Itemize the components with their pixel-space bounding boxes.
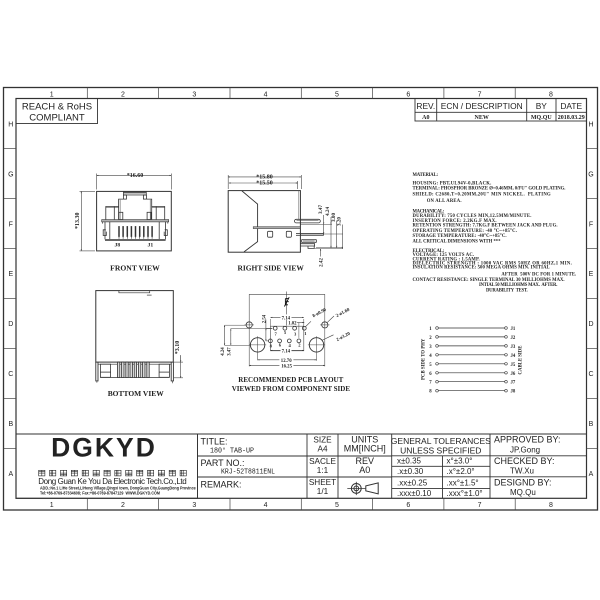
svg-text:A: A: [8, 471, 13, 478]
svg-text:1:1: 1:1: [317, 466, 329, 475]
svg-text:REMARK:: REMARK:: [201, 480, 242, 490]
svg-text:16.25: 16.25: [281, 365, 292, 370]
svg-text:J8: J8: [115, 242, 121, 248]
svg-text:*13.30: *13.30: [75, 213, 81, 230]
svg-text:7: 7: [478, 502, 482, 509]
svg-text:ON ALL AREA.: ON ALL AREA.: [427, 199, 462, 204]
svg-text:J2: J2: [511, 336, 516, 341]
svg-text:J6: J6: [511, 372, 516, 377]
svg-text:BOTTOM VIEW: BOTTOM VIEW: [108, 389, 164, 398]
svg-text:MM[INCH]: MM[INCH]: [344, 444, 386, 454]
svg-text:J5: J5: [511, 363, 516, 368]
svg-text:2.42: 2.42: [319, 258, 325, 267]
svg-text:180° TAB-UP: 180° TAB-UP: [210, 447, 254, 456]
svg-text:A: A: [589, 471, 594, 478]
svg-text:J7: J7: [511, 381, 516, 386]
svg-text:VIEWED FROM COMPONENT SIDE: VIEWED FROM COMPONENT SIDE: [232, 385, 351, 393]
svg-text:H: H: [8, 121, 13, 128]
svg-text:1.02: 1.02: [288, 322, 297, 327]
svg-text:D: D: [8, 321, 13, 328]
svg-text:3.47: 3.47: [318, 205, 324, 214]
svg-text:J8: J8: [511, 390, 516, 395]
svg-text:CABLE SIDE: CABLE SIDE: [518, 346, 523, 375]
svg-text:.xxx°±1.0°: .xxx°±1.0°: [447, 489, 483, 498]
svg-text:x±0.35: x±0.35: [397, 457, 422, 466]
svg-text:.xx±0.25: .xx±0.25: [397, 479, 428, 488]
svg-text:DGKYD: DGKYD: [51, 433, 157, 463]
svg-text:KRJ-52T8811ENL: KRJ-52T8811ENL: [221, 469, 275, 477]
svg-text:DESIGND BY:: DESIGND BY:: [494, 478, 552, 488]
svg-text:4.24: 4.24: [221, 347, 226, 356]
svg-text:ALL CRITICAL DIMENSIONS WITH *: ALL CRITICAL DIMENSIONS WITH ***: [413, 239, 502, 244]
svg-text:SHEET: SHEET: [309, 478, 336, 487]
svg-text:A0: A0: [359, 465, 370, 475]
svg-text:B: B: [8, 421, 13, 428]
svg-text:ECN / DESCRIPTION: ECN / DESCRIPTION: [441, 101, 523, 111]
svg-text:.xx°±1.5°: .xx°±1.5°: [447, 479, 479, 488]
svg-text:J4: J4: [511, 354, 516, 359]
svg-text:F: F: [589, 221, 593, 228]
svg-text:COMPLIANT: COMPLIANT: [29, 113, 85, 124]
svg-text:SHIELD: C2680,T=0.20MM,20U" MI: SHIELD: C2680,T=0.20MM,20U" MIN NICKEL. …: [413, 193, 552, 198]
svg-text:8: 8: [549, 502, 553, 509]
svg-text:H: H: [588, 121, 593, 128]
svg-text:3: 3: [192, 502, 196, 509]
svg-text:MQ.QU: MQ.QU: [531, 115, 552, 121]
svg-text:*15.50: *15.50: [256, 181, 273, 187]
svg-text:1: 1: [50, 502, 54, 509]
svg-text:7.14: 7.14: [282, 350, 291, 355]
svg-text:2: 2: [121, 92, 125, 99]
svg-text:RECOMMENDED PCB LAYOUT: RECOMMENDED PCB LAYOUT: [238, 376, 343, 384]
svg-text:NEW: NEW: [475, 115, 489, 121]
svg-text:E: E: [589, 271, 594, 278]
svg-text:5: 5: [335, 92, 339, 99]
svg-text:3.20: 3.20: [337, 217, 343, 226]
svg-text:FRONT VIEW: FRONT VIEW: [110, 264, 160, 273]
svg-text:*16.60: *16.60: [127, 173, 144, 179]
svg-text:5: 5: [335, 502, 339, 509]
svg-text:PART NO.:: PART NO.:: [201, 458, 245, 468]
svg-text:8: 8: [549, 92, 553, 99]
svg-text:x°±3.0°: x°±3.0°: [447, 457, 473, 466]
svg-text:7: 7: [478, 92, 482, 99]
svg-text:*3.10: *3.10: [175, 341, 181, 355]
svg-text:CHECKED BY:: CHECKED BY:: [494, 456, 555, 466]
svg-text:UNLESS SPECIFIED: UNLESS SPECIFIED: [400, 446, 481, 456]
svg-text:A4: A4: [317, 445, 327, 454]
svg-text:2018.03.29: 2018.03.29: [558, 115, 585, 121]
svg-text:JP.Gong: JP.Gong: [510, 446, 540, 455]
svg-text:J1: J1: [511, 327, 516, 332]
svg-text:*15.80: *15.80: [256, 174, 273, 180]
svg-text:J3: J3: [511, 345, 516, 350]
svg-text:F: F: [9, 221, 13, 228]
svg-text:6: 6: [406, 92, 410, 99]
svg-text:E: E: [8, 271, 13, 278]
svg-text:G: G: [588, 171, 593, 178]
svg-text:2.54: 2.54: [262, 314, 267, 323]
svg-text:1: 1: [50, 92, 54, 99]
svg-text:.x±0.30: .x±0.30: [397, 467, 424, 476]
svg-text:A0: A0: [422, 115, 429, 121]
svg-text:INSULATION RESISTANCE: 500 MEG: INSULATION RESISTANCE: 500 MEGA OHMS MIN…: [413, 266, 550, 271]
svg-text:B: B: [589, 421, 594, 428]
svg-text:RIGHT SIDE VIEW: RIGHT SIDE VIEW: [238, 263, 305, 272]
svg-text:TERMINAL: PHOSPHOR BRONZE Ø=0.: TERMINAL: PHOSPHOR BRONZE Ø=0.46MM, 0/FU…: [413, 187, 566, 192]
svg-text:MQ.Qu: MQ.Qu: [510, 488, 536, 497]
svg-text:4: 4: [264, 502, 268, 509]
svg-text:STORAGE TEMPERATURE: -40°C~+85: STORAGE TEMPERATURE: -40°C~+85°C.: [413, 234, 507, 239]
svg-text:PCB SIDE TO PHY: PCB SIDE TO PHY: [422, 338, 427, 380]
svg-text:AFTER 500V DC FOR 1 MINUTE.: AFTER 500V DC FOR 1 MINUTE.: [501, 273, 576, 278]
svg-text:1/1: 1/1: [317, 487, 329, 496]
svg-text:RETENTION STRENGTH: 7.7KG.F BE: RETENTION STRENGTH: 7.7KG.F BETWEEN JACK…: [413, 224, 558, 229]
svg-text:C: C: [8, 371, 13, 378]
svg-text:INTIAL 50 MILLIOHMS MAX. AFTE: INTIAL 50 MILLIOHMS MAX. AFTER.: [479, 283, 557, 288]
svg-text:REACH & RoHS: REACH & RoHS: [22, 102, 92, 113]
svg-text:HOUSING: PBT,UL94V-0,BLACK.: HOUSING: PBT,UL94V-0,BLACK.: [413, 181, 492, 186]
svg-text:DURABILITY TEST.: DURABILITY TEST.: [486, 289, 528, 294]
svg-text:2: 2: [121, 502, 125, 509]
svg-text:6: 6: [406, 502, 410, 509]
svg-text:G: G: [8, 171, 13, 178]
svg-text:DATE: DATE: [560, 101, 582, 111]
svg-text:.x°±2.0°: .x°±2.0°: [447, 467, 475, 476]
svg-text:4: 4: [264, 92, 268, 99]
svg-text:D: D: [588, 321, 593, 328]
svg-text:TITLE:: TITLE:: [201, 437, 228, 447]
svg-text:SIZE: SIZE: [313, 436, 332, 445]
svg-text:Tel:+86-0769-87334608; Fax:+86: Tel:+86-0769-87334608; Fax:+86-0769-8784…: [40, 491, 160, 496]
svg-text:SACLE: SACLE: [309, 457, 336, 466]
svg-text:C: C: [588, 371, 593, 378]
svg-text:GENERAL TOLERANCES: GENERAL TOLERANCES: [391, 436, 491, 446]
svg-text:.xxx±0.10: .xxx±0.10: [397, 489, 432, 498]
svg-text:J1: J1: [148, 243, 154, 249]
svg-text:3: 3: [192, 92, 196, 99]
svg-text:TW.Xu: TW.Xu: [510, 467, 534, 476]
svg-text:3.47: 3.47: [227, 347, 232, 356]
svg-text:REV.: REV.: [416, 101, 435, 111]
svg-text:MATERIAL:: MATERIAL:: [413, 173, 439, 178]
svg-text:APPROVED BY:: APPROVED BY:: [494, 435, 561, 445]
svg-text:Dong Guan Ke You Da Electronic: Dong Guan Ke You Da Electronic Tech.Co.,…: [38, 477, 186, 486]
svg-text:BY: BY: [536, 101, 548, 111]
